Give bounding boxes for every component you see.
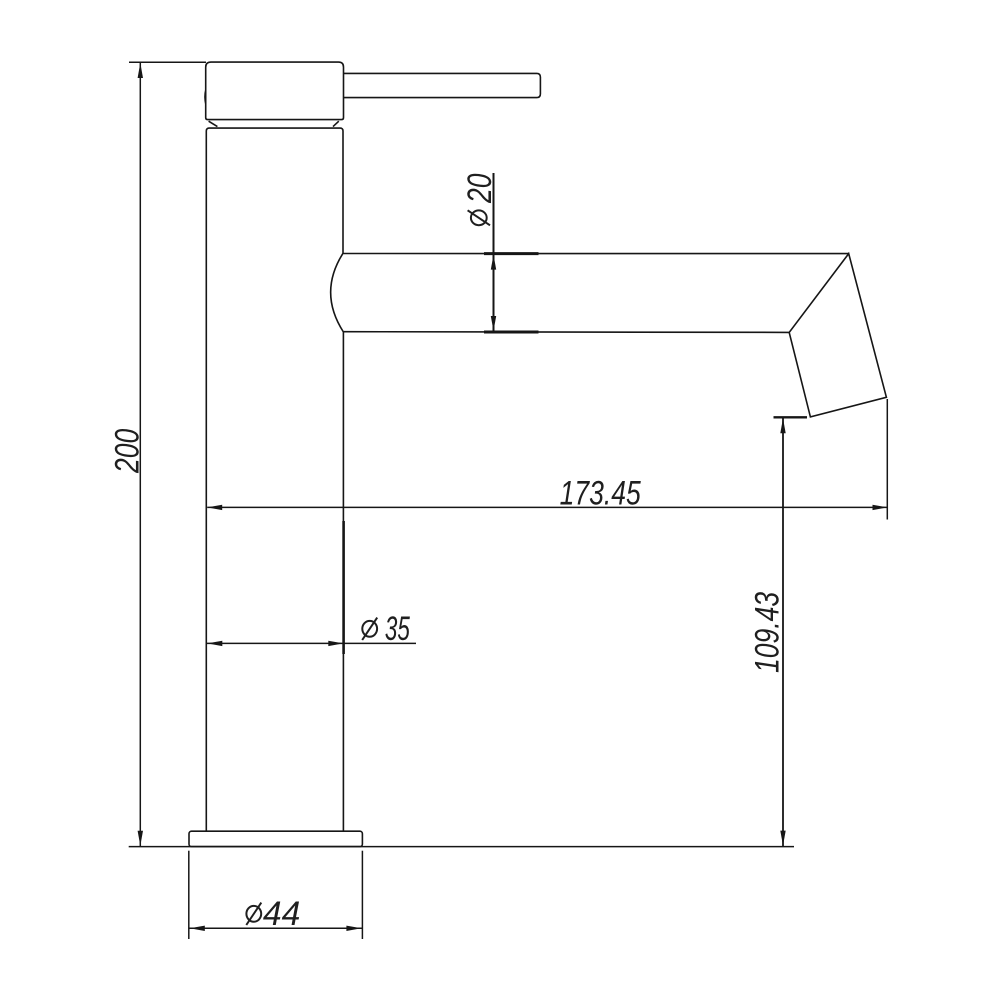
svg-text:109.43: 109.43 — [748, 592, 786, 673]
svg-text:20: 20 — [461, 173, 499, 203]
svg-text:44: 44 — [263, 895, 300, 933]
svg-text:173.45: 173.45 — [560, 474, 642, 512]
svg-text:35: 35 — [385, 610, 411, 648]
svg-text:200: 200 — [108, 429, 146, 474]
